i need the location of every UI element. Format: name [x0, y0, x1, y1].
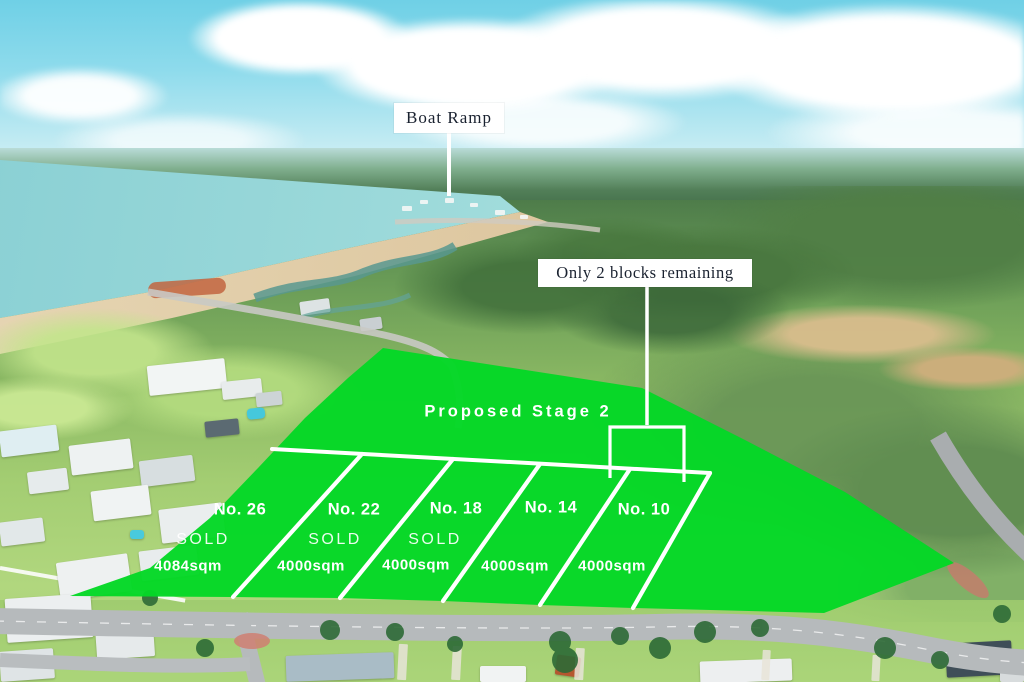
lot-26-status: SOLD: [176, 531, 230, 549]
lot-10-area: 4000sqm: [578, 558, 646, 575]
foreshore-road: [395, 220, 600, 230]
lot-18-number: No. 18: [430, 500, 483, 519]
aerial-photo-scene: Boat Ramp Only 2 blocks remaining Propos…: [0, 0, 1024, 682]
lot-26-area: 4084sqm: [154, 558, 222, 575]
boat-ramp-label: Boat Ramp: [406, 108, 492, 128]
estuary-creek: [300, 295, 410, 318]
lot-22-status: SOLD: [308, 531, 362, 549]
colored-intersection: [234, 633, 270, 649]
frontage-road: [0, 621, 1024, 663]
remaining-blocks-label: Only 2 blocks remaining: [556, 263, 733, 283]
lot-14-number: No. 14: [525, 499, 578, 518]
site-plan-overlay: [0, 0, 1024, 682]
boat-ramp-callout: Boat Ramp: [394, 103, 504, 133]
lot-22-number: No. 22: [328, 501, 381, 520]
lot-18-area: 4000sqm: [382, 557, 450, 574]
side-street: [0, 660, 250, 666]
remaining-blocks-callout: Only 2 blocks remaining: [538, 259, 752, 287]
lot-14-area: 4000sqm: [481, 558, 549, 575]
lot-18-status: SOLD: [408, 531, 462, 549]
lot-26-number: No. 26: [214, 501, 267, 520]
lot-22-area: 4000sqm: [277, 558, 345, 575]
estuary-creek: [255, 246, 455, 298]
lot-10-number: No. 10: [618, 501, 671, 520]
highway-road: [938, 436, 1024, 558]
stage2-title: Proposed Stage 2: [424, 403, 611, 422]
